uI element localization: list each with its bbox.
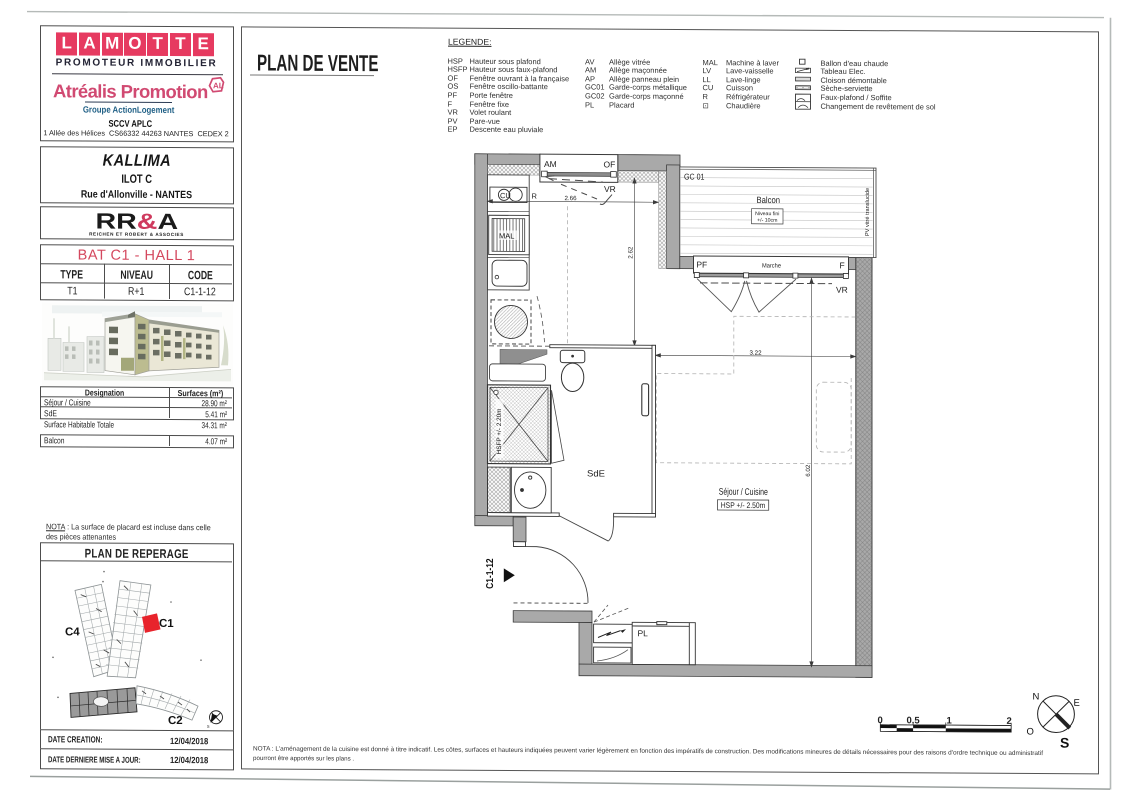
svg-text:GC 01: GC 01 xyxy=(684,171,705,181)
svg-text:N: N xyxy=(1033,691,1040,702)
svg-text:CU: CU xyxy=(500,191,511,200)
svg-text:PL: PL xyxy=(638,628,649,638)
svg-text:Niveau fini: Niveau fini xyxy=(755,211,779,217)
svg-text:F: F xyxy=(840,260,845,270)
svg-text:O: O xyxy=(1027,726,1034,737)
svg-text:R: R xyxy=(532,191,538,200)
svg-text:MAL: MAL xyxy=(499,231,514,240)
svg-text:PV vitré translucide: PV vitré translucide xyxy=(865,187,871,235)
svg-text:PF: PF xyxy=(696,259,707,269)
svg-text:VR: VR xyxy=(836,284,848,294)
svg-text:2.66: 2.66 xyxy=(565,195,578,202)
svg-text:OF: OF xyxy=(604,159,616,169)
svg-text:Balcon: Balcon xyxy=(757,194,781,204)
svg-text:C1-1-12: C1-1-12 xyxy=(485,557,496,588)
svg-text:S: S xyxy=(1060,734,1069,750)
svg-text:3.22: 3.22 xyxy=(750,349,763,356)
svg-text:E: E xyxy=(1074,697,1080,708)
svg-text:VR: VR xyxy=(604,184,616,194)
svg-text:NOTA : L'aménagement de la cui: NOTA : L'aménagement de la cuisine est d… xyxy=(253,745,1043,757)
svg-text:6.02: 6.02 xyxy=(805,464,812,477)
svg-text:Séjour / Cuisine: Séjour / Cuisine xyxy=(719,486,768,497)
svg-text:+/- 10cm: +/- 10cm xyxy=(757,217,777,223)
svg-text:SdE: SdE xyxy=(587,468,605,478)
svg-text:AM: AM xyxy=(544,158,557,168)
svg-text:HSP +/- 2.50m: HSP +/- 2.50m xyxy=(721,500,766,509)
svg-text:Marche: Marche xyxy=(762,262,782,269)
svg-text:HSFP +/- 2.20m: HSFP +/- 2.20m xyxy=(496,408,503,454)
svg-text:pourront être apportés sur les: pourront être apportés sur les plans . xyxy=(253,754,354,762)
svg-text:2.62: 2.62 xyxy=(627,246,634,259)
